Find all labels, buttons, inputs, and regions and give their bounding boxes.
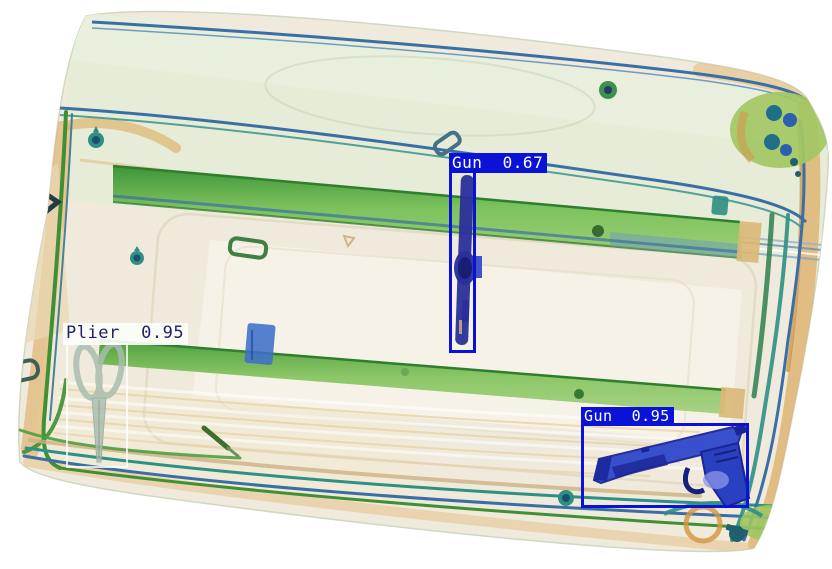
detection-label-gun-1: Gun 0.67 [449, 153, 547, 173]
detection-box-gun-1: Gun 0.67 [449, 170, 476, 353]
detection-box-plier-1: Plier 0.95 [66, 343, 128, 468]
detection-label-plier-1: Plier 0.95 [63, 323, 188, 345]
xray-scan-viewer: Gun 0.67 Plier 0.95 Gun 0.95 [0, 0, 832, 569]
detection-box-gun-2: Gun 0.95 [581, 423, 749, 508]
detection-label-gun-2: Gun 0.95 [581, 407, 674, 426]
